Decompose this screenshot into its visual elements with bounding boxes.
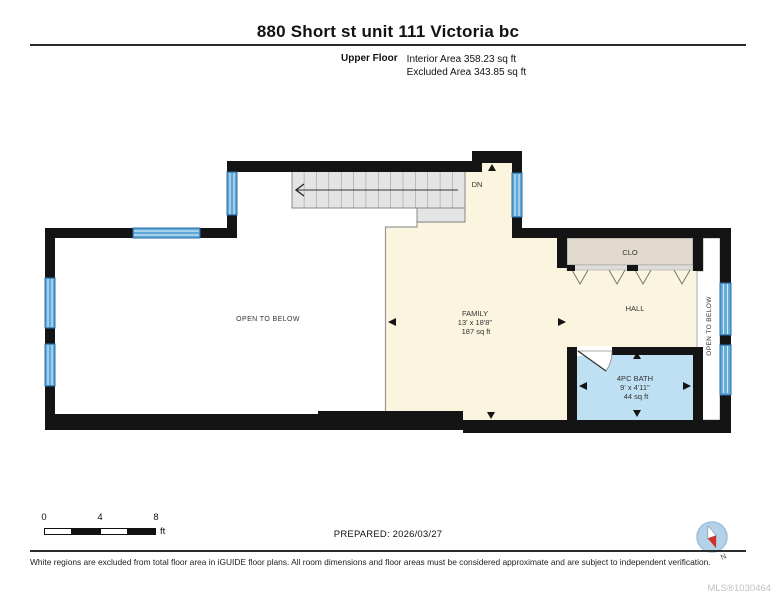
window [512,173,522,217]
window [720,283,731,335]
scale-tick-0: 0 [38,512,50,523]
scale-tick-4: 4 [94,512,106,523]
floorplan-page: 880 Short st unit 111 Victoria bc Upper … [0,0,776,600]
compass-icon [697,522,727,552]
stair-dn-label: DN [472,180,483,189]
window [45,278,55,328]
hall-label: HALL [626,304,645,313]
footer-divider [30,550,746,552]
window [720,345,731,395]
open-below-right-label: OPEN TO BELOW [706,296,713,356]
disclaimer-text: White regions are excluded from total fl… [30,557,746,567]
prepared-date: PREPARED: 2026/03/27 [334,529,442,540]
floorplan-drawing: OPEN TO BELOW FAMILY 13' x 18'8" 187 sq … [0,0,776,600]
closet-label: CLO [622,248,638,257]
scale-unit-label: ft [160,526,165,537]
mls-number: MLS®1030464 [707,583,771,594]
scale-tick-8: 8 [150,512,162,523]
window [133,228,200,238]
scale-bar-segments [44,528,156,535]
open-below-left-label: OPEN TO BELOW [236,316,300,323]
scale-bar: 0 4 8 ft [44,512,184,542]
family-label: FAMILY 13' x 18'8" 187 sq ft [458,309,494,336]
window [45,344,55,386]
window [227,172,237,215]
